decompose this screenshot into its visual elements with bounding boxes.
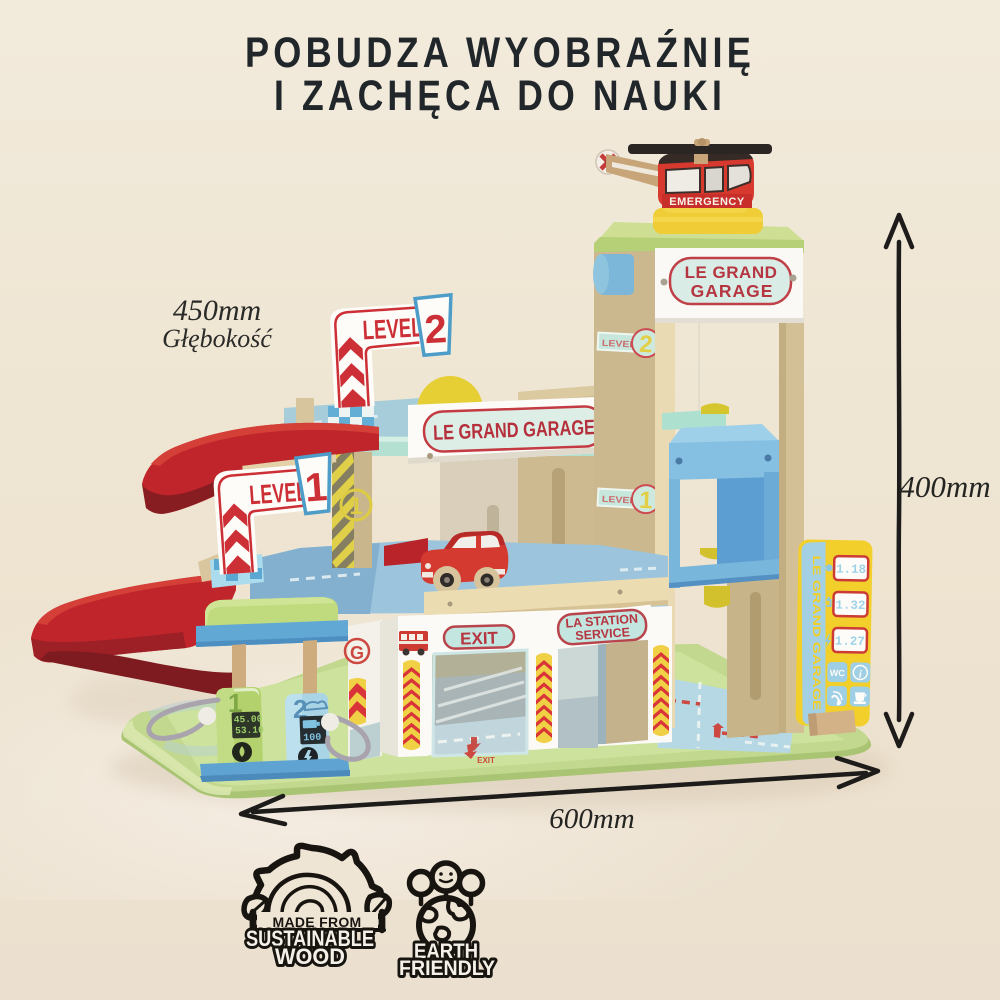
svg-text:1: 1 [349,493,362,520]
svg-text:POBUDZA WYOBRAŹNIĘ: POBUDZA WYOBRAŹNIĘ [245,29,755,77]
svg-text:1.27: 1.27 [835,635,865,650]
svg-text:LEVEL: LEVEL [362,312,423,345]
svg-text:2: 2 [639,331,654,359]
svg-text:LE GRAND GARAGE: LE GRAND GARAGE [810,556,822,711]
svg-text:1.32: 1.32 [835,599,865,614]
svg-text:EMERGENCY: EMERGENCY [669,196,745,208]
svg-text:Głębokość: Głębokość [162,324,273,353]
svg-text:100: 100 [303,733,321,745]
svg-text:600mm: 600mm [549,803,634,835]
svg-text:450mm: 450mm [173,294,261,327]
svg-text:1: 1 [303,465,328,510]
svg-text:1.18: 1.18 [836,563,866,578]
svg-text:FRIENDLY: FRIENDLY [399,957,495,980]
svg-text:I ZACHĘCA DO NAUKI: I ZACHĘCA DO NAUKI [274,72,726,120]
svg-text:53.10: 53.10 [235,724,264,736]
svg-text:EXIT: EXIT [477,756,495,765]
svg-text:1: 1 [639,487,654,515]
svg-text:G: G [350,643,364,663]
svg-text:GARAGE: GARAGE [691,281,774,301]
svg-text:400mm: 400mm [899,469,990,504]
svg-text:WOOD: WOOD [275,944,345,969]
svg-text:EXIT: EXIT [460,628,499,648]
svg-text:2: 2 [423,307,448,352]
svg-text:LE GRAND: LE GRAND [685,263,778,282]
svg-text:WC: WC [830,668,846,678]
